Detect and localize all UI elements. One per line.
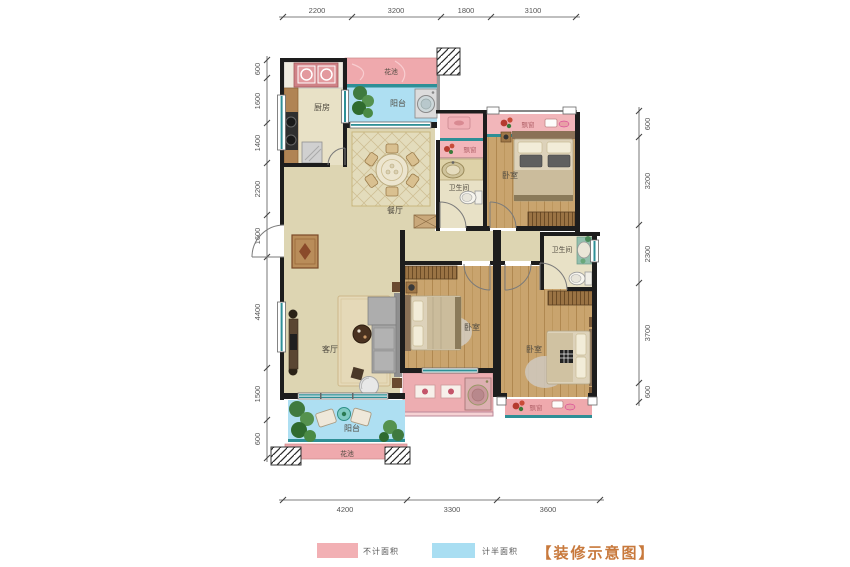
- label-balcony-bottom: 阳台: [344, 423, 360, 433]
- tv-cabinet-icon: [289, 310, 299, 376]
- entry-rug: [292, 235, 318, 268]
- label-living: 客厅: [322, 344, 338, 354]
- bay1-frame-end: [487, 107, 499, 114]
- bed1-headboard: [512, 131, 575, 139]
- legend-swatch-uncounted: [317, 543, 358, 558]
- washing-machine-icon: [465, 378, 491, 410]
- hall-console-icon: [414, 215, 438, 228]
- bathroom2-window: [591, 240, 599, 262]
- dining-table-icon: [376, 154, 408, 186]
- toilet-icon: [460, 191, 482, 204]
- bedroom2-window: [422, 368, 478, 373]
- label-flower-top: 花池: [384, 67, 398, 76]
- bay-window-bedroom3-line: [505, 415, 592, 418]
- dim-right-2: 3200: [643, 173, 652, 190]
- column-hatch: [437, 48, 460, 75]
- legend-swatch-half: [432, 543, 475, 558]
- dim-top-1: 2200: [309, 6, 326, 15]
- column-hatch: [385, 447, 410, 464]
- floor-plan-canvas: 2200 3200 1800 3100 4200 3300 3600 600 1…: [0, 0, 850, 567]
- bay3-item: [565, 404, 575, 410]
- wardrobe-bedroom3: [548, 291, 596, 305]
- legend-label-uncounted: 不计面积: [363, 546, 399, 556]
- label-bathroom1: 卫生间: [449, 183, 470, 192]
- legend-label-half: 计半面积: [482, 546, 518, 556]
- dim-right-3: 2300: [643, 246, 652, 263]
- dim-left-2: 1600: [253, 93, 262, 110]
- dim-left-4: 2200: [253, 181, 262, 198]
- bath2-sink-icon: [578, 242, 591, 258]
- coffee-table-icon: [353, 325, 371, 343]
- dim-right-1: 600: [643, 118, 652, 131]
- dim-bottom-3: 3600: [540, 505, 557, 514]
- lamp-icon: [504, 135, 509, 140]
- dim-left-1: 600: [253, 63, 262, 76]
- dim-right-4: 3700: [643, 325, 652, 342]
- dim-top-4: 3100: [525, 6, 542, 15]
- dim-left-5: 1600: [253, 228, 262, 245]
- kitchen-window: [278, 95, 286, 150]
- dim-left-7: 1500: [253, 386, 262, 403]
- bay1-item: [545, 119, 557, 127]
- hallway-floor: [400, 231, 540, 261]
- washing-machine-icon: [415, 89, 437, 118]
- label-balcony-top: 阳台: [390, 98, 406, 108]
- label-flower-bottom: 花池: [340, 449, 354, 458]
- toilet-icon: [569, 272, 592, 285]
- legend: 不计面积 计半面积 【装修示意图】: [317, 543, 656, 562]
- bay3-frame-end: [497, 397, 506, 405]
- bay1-item: [559, 121, 569, 127]
- living-balcony-slider: [298, 393, 388, 399]
- label-bay-bedroom3: 飘窗: [530, 403, 543, 412]
- label-bedroom2: 卧室: [464, 322, 480, 332]
- dim-top-3: 1800: [458, 6, 475, 15]
- floor-plan-svg: 2200 3200 1800 3100 4200 3300 3600 600 1…: [0, 0, 850, 567]
- checkered-pillow-icon: [560, 350, 573, 363]
- dimension-top: 2200 3200 1800 3100: [279, 6, 580, 20]
- column-hatch: [271, 447, 301, 465]
- kitchen-balcony-window: [342, 90, 349, 123]
- plan-title: 【装修示意图】: [536, 544, 655, 562]
- bay1-frame-end: [563, 107, 576, 114]
- bay3-frame-end: [588, 397, 597, 405]
- dimension-right: 600 3200 2300 3700 600: [636, 107, 652, 406]
- sofa-icon: [368, 282, 402, 388]
- wardrobe-bedroom1: [528, 212, 575, 227]
- label-kitchen: 厨房: [314, 102, 330, 112]
- living-window: [278, 302, 286, 352]
- vanity-bay-window-line: [440, 138, 483, 141]
- dim-left-8: 600: [253, 433, 262, 446]
- label-bay-hall: 飘窗: [464, 145, 477, 154]
- dim-bottom-1: 4200: [337, 505, 354, 514]
- dim-bottom-2: 3300: [444, 505, 461, 514]
- dim-left-6: 4400: [253, 304, 262, 321]
- label-dining: 餐厅: [387, 206, 403, 215]
- dim-left-3: 1400: [253, 135, 262, 152]
- vanity-icon: [448, 117, 470, 129]
- lamp-icon: [408, 284, 414, 290]
- dim-right-5: 600: [643, 386, 652, 399]
- dimension-left: 600 1600 1400 2200 1600 4400 1500 600: [253, 56, 270, 462]
- label-bay-bedroom1: 飘窗: [522, 120, 535, 129]
- bay3-item: [552, 401, 563, 408]
- label-bathroom2: 卫生间: [552, 245, 573, 254]
- utility-balcony-rail: [403, 412, 493, 416]
- label-bedroom3: 卧室: [526, 344, 542, 354]
- dim-top-2: 3200: [388, 6, 405, 15]
- wardrobe-bedroom2: [405, 266, 457, 279]
- label-bedroom1: 卧室: [502, 170, 518, 180]
- balcony-dining-slider: [350, 122, 431, 128]
- dimension-bottom: 4200 3300 3600: [279, 497, 604, 514]
